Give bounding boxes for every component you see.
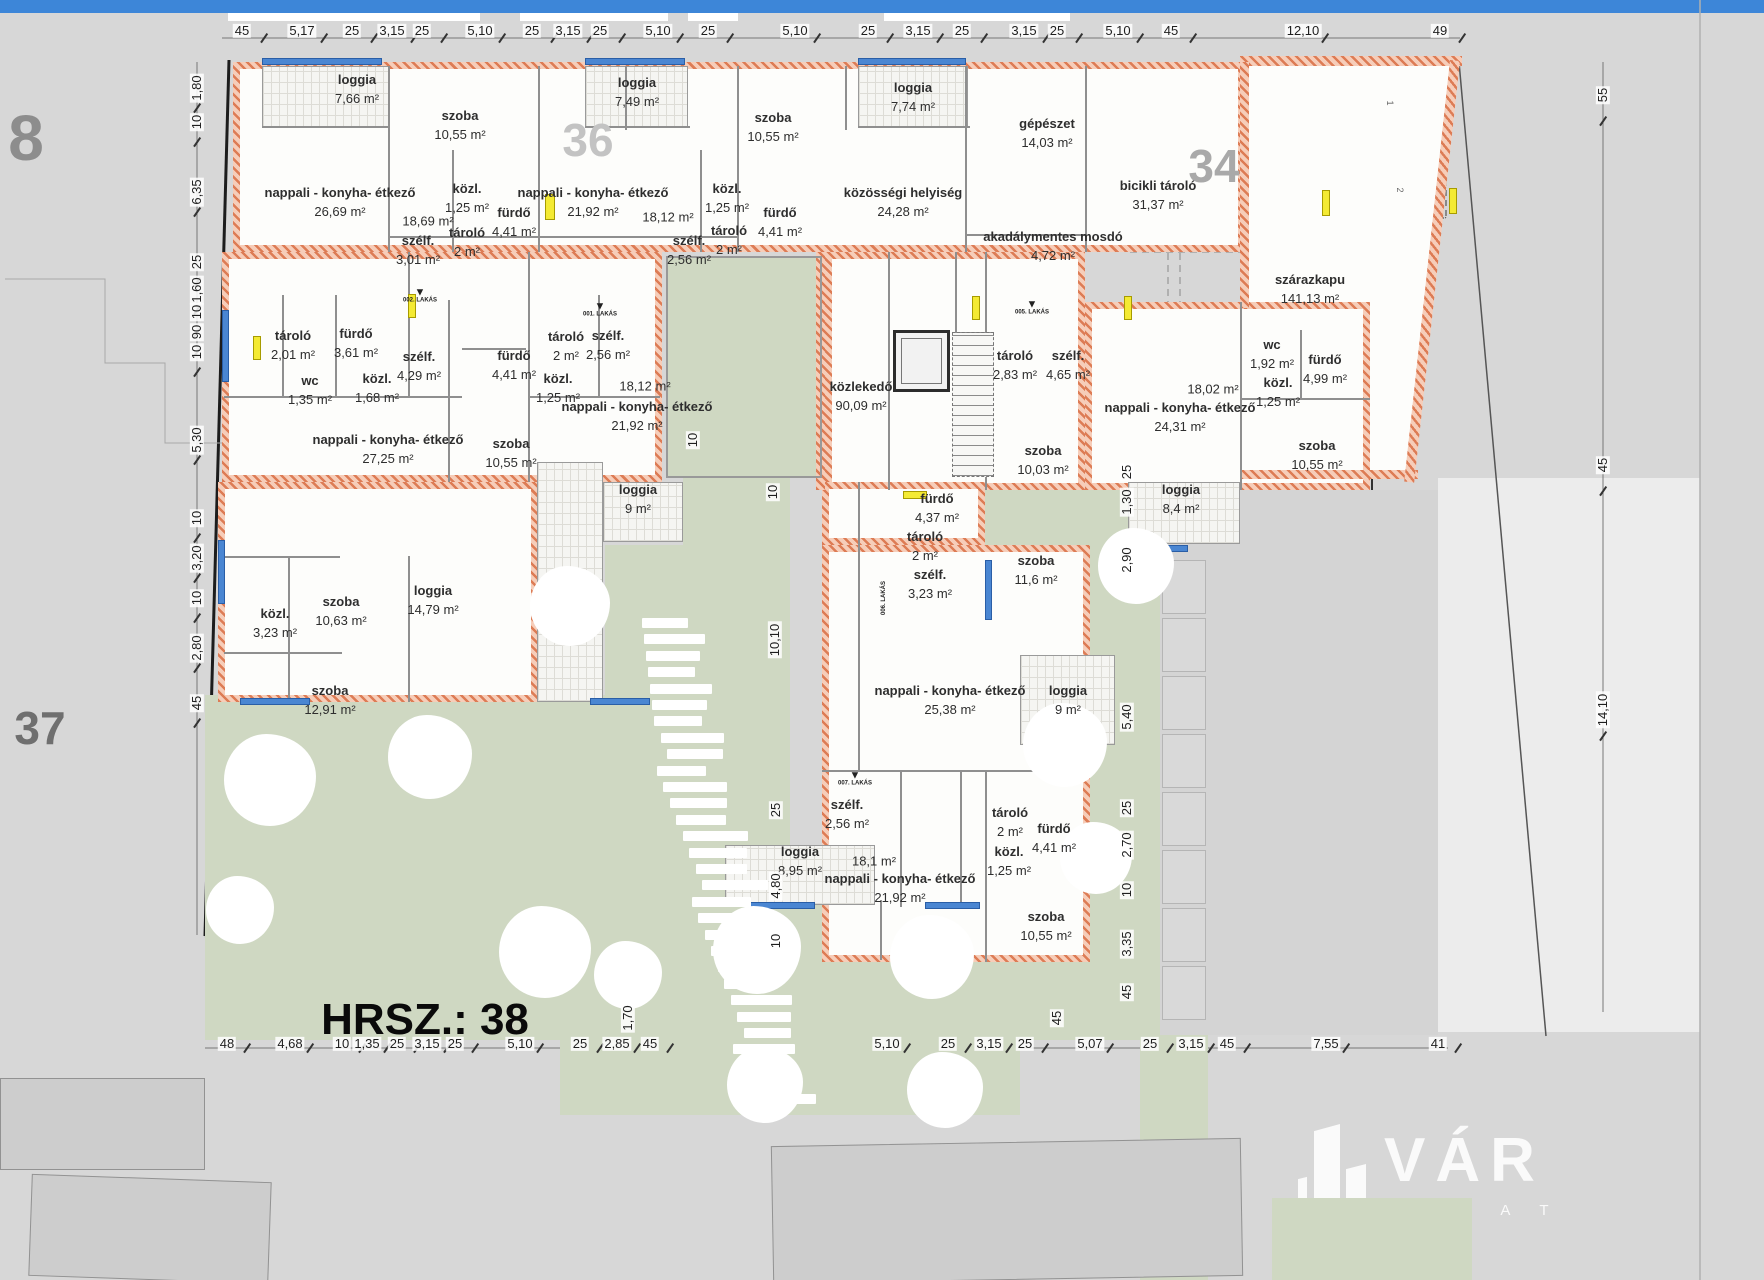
dimension-label: 25 bbox=[939, 1037, 957, 1051]
dimension-label: 45 bbox=[1050, 1009, 1064, 1027]
interior-wall bbox=[858, 126, 970, 128]
stepping-stone bbox=[737, 1012, 791, 1022]
interior-wall bbox=[222, 556, 340, 558]
hrsz-parcel-label: HRSZ.: 38 bbox=[321, 995, 529, 1045]
elevator-car bbox=[901, 338, 942, 384]
parking-stall bbox=[1162, 734, 1206, 788]
garden-area bbox=[1272, 1198, 1472, 1280]
dim-tick bbox=[193, 137, 201, 147]
stepping-stone bbox=[648, 667, 695, 677]
dimension-label: 25 bbox=[1048, 24, 1066, 38]
parcel-number-label: 8 bbox=[8, 101, 44, 175]
room-label: loggia14,79 m² bbox=[407, 582, 458, 620]
dimension-label: 25 bbox=[591, 24, 609, 38]
parcel-number-label: 36 bbox=[562, 113, 613, 167]
room-label: szélf.4,29 m² bbox=[397, 348, 441, 386]
sidewalk-segment bbox=[520, 13, 668, 21]
room-label: szélf.2,56 m² bbox=[586, 327, 630, 365]
room-label: szélf.3,01 m² bbox=[396, 232, 440, 270]
room-label: 18,12 m² bbox=[619, 378, 670, 397]
parking-stall bbox=[1162, 618, 1206, 672]
stepping-stone bbox=[646, 651, 700, 661]
dimension-label: 2,90 bbox=[1120, 545, 1134, 574]
room-label: loggia9 m² bbox=[1049, 682, 1087, 720]
dim-tick bbox=[1458, 33, 1466, 43]
dimension-label: 10 bbox=[769, 932, 783, 950]
room-label: loggia8,4 m² bbox=[1162, 481, 1200, 519]
interior-wall bbox=[1300, 330, 1302, 398]
stepping-stone bbox=[654, 716, 702, 726]
room-label: szoba11,6 m² bbox=[1014, 552, 1057, 590]
hall-axis-number: 1 bbox=[1385, 100, 1395, 105]
dimension-label: 12,10 bbox=[1285, 24, 1322, 38]
hall-wall bbox=[1240, 62, 1249, 308]
room-label: szoba10,55 m² bbox=[434, 107, 485, 145]
interior-wall bbox=[224, 396, 462, 398]
dimension-label: 25 bbox=[343, 24, 361, 38]
dim-tick bbox=[1189, 33, 1197, 43]
room-label: 18,1 m² bbox=[852, 853, 896, 872]
room-label: loggia7,49 m² bbox=[615, 74, 659, 112]
window-band bbox=[240, 698, 310, 705]
dimension-label: 3,15 bbox=[553, 24, 582, 38]
room-label: közl.3,23 m² bbox=[253, 605, 297, 643]
street-strip bbox=[0, 0, 1764, 13]
room-label: bicikli tároló31,37 m² bbox=[1120, 177, 1197, 215]
dimension-label: 5,30 bbox=[190, 425, 204, 454]
stepping-stone bbox=[657, 766, 706, 776]
room-label: szoba10,63 m² bbox=[315, 593, 366, 631]
dimension-label: 1,30 bbox=[1120, 487, 1134, 516]
stepping-stone bbox=[702, 880, 768, 890]
dimension-label: 48 bbox=[218, 1037, 236, 1051]
room-label: tároló2 m² bbox=[711, 222, 747, 260]
dimension-label: 10,10 bbox=[768, 622, 782, 659]
window-band bbox=[262, 58, 382, 65]
window-band bbox=[985, 560, 992, 620]
room-label: nappali - konyha- étkező24,31 m² bbox=[1105, 399, 1256, 437]
room-label: tároló2 m² bbox=[449, 224, 485, 262]
unit-entrance-marker: ▼001. LAKÁS bbox=[583, 303, 617, 318]
radiator-mark bbox=[1124, 296, 1132, 320]
dimension-label: 10 bbox=[190, 509, 204, 527]
dimension-label: 25 bbox=[571, 1037, 589, 1051]
room-label: közl.1,25 m² bbox=[705, 180, 749, 218]
dimension-label: 25 bbox=[413, 24, 431, 38]
window-band bbox=[858, 58, 966, 65]
stepping-stone bbox=[644, 634, 705, 644]
window-band bbox=[590, 698, 650, 705]
dim-tick bbox=[193, 573, 201, 583]
interior-wall bbox=[408, 556, 410, 702]
dim-tick bbox=[260, 33, 268, 43]
dimension-label: 3,20 bbox=[190, 543, 204, 572]
stepping-stone bbox=[670, 798, 727, 808]
dimension-label: 14,10 bbox=[1596, 692, 1610, 729]
dimension-label: 3,15 bbox=[974, 1037, 1003, 1051]
dimension-label: 45 bbox=[1596, 456, 1610, 474]
room-label: tároló2,83 m² bbox=[993, 347, 1037, 385]
dimension-label: 5,07 bbox=[1075, 1037, 1104, 1051]
room-label: közl.1,25 m² bbox=[1256, 374, 1300, 412]
dimension-label: 55 bbox=[1596, 86, 1610, 104]
dimension-label: 45 bbox=[233, 24, 251, 38]
dimension-label: 5,10 bbox=[780, 24, 809, 38]
dim-tick bbox=[440, 33, 448, 43]
dim-tick bbox=[676, 33, 684, 43]
interior-wall bbox=[262, 126, 390, 128]
dimension-label: 4,80 bbox=[769, 871, 783, 900]
parking-stall bbox=[1162, 966, 1206, 1020]
room-label: nappali - konyha- étkező25,38 m² bbox=[875, 682, 1026, 720]
building-block bbox=[218, 482, 538, 702]
dimension-label: 49 bbox=[1431, 24, 1449, 38]
room-label: szoba10,55 m² bbox=[1020, 908, 1071, 946]
dimension-label: 45 bbox=[190, 694, 204, 712]
dimension-label: 2,70 bbox=[1120, 830, 1134, 859]
dimension-label: 10 bbox=[766, 483, 780, 501]
stepping-stone bbox=[696, 864, 747, 874]
dimension-label: 25 bbox=[953, 24, 971, 38]
dim-tick bbox=[193, 207, 201, 217]
dimension-label: 45 bbox=[641, 1037, 659, 1051]
stepping-stone bbox=[689, 848, 747, 858]
window-band bbox=[222, 310, 229, 382]
dimension-label: 2,85 bbox=[602, 1037, 631, 1051]
room-label: loggia7,74 m² bbox=[891, 79, 935, 117]
room-label: akadálymentes mosdó4,72 m² bbox=[983, 228, 1122, 266]
room-label: nappali - konyha- étkező21,92 m² bbox=[825, 870, 976, 908]
dim-tick bbox=[243, 1043, 251, 1053]
dim-tick bbox=[320, 33, 328, 43]
dim-tick bbox=[193, 455, 201, 465]
dimension-label: 90 bbox=[190, 323, 204, 341]
window-band bbox=[585, 58, 685, 65]
stepping-stone bbox=[744, 1028, 791, 1038]
room-label: szélf.2,56 m² bbox=[825, 796, 869, 834]
room-label: fürdő4,41 m² bbox=[492, 347, 536, 385]
dim-tick bbox=[498, 33, 506, 43]
dimension-label: 25 bbox=[190, 253, 204, 271]
dimension-label: 10 bbox=[1120, 881, 1134, 899]
stepping-stone bbox=[667, 749, 723, 759]
room-label: 18,12 m² bbox=[642, 209, 693, 228]
dim-tick bbox=[726, 33, 734, 43]
dim-tick bbox=[306, 1043, 314, 1053]
tree bbox=[907, 1052, 983, 1128]
dimension-label: 3,35 bbox=[1120, 929, 1134, 958]
room-label: tároló2 m² bbox=[992, 804, 1028, 842]
unit-entrance-marker: ▼007. LAKÁS bbox=[838, 772, 872, 787]
room-label: közl.1,25 m² bbox=[445, 180, 489, 218]
room-label: szoba10,55 m² bbox=[1291, 437, 1342, 475]
dimension-label: 6,35 bbox=[190, 177, 204, 206]
hall-wall bbox=[1240, 56, 1462, 66]
dim-tick bbox=[193, 367, 201, 377]
dim-tick bbox=[193, 103, 201, 113]
interior-wall bbox=[858, 482, 860, 772]
room-label: fürdő4,99 m² bbox=[1303, 351, 1347, 389]
dimension-label: 25 bbox=[523, 24, 541, 38]
dimension-label: 25 bbox=[859, 24, 877, 38]
dim-tick bbox=[936, 33, 944, 43]
room-label: közl.1,25 m² bbox=[987, 843, 1031, 881]
stepping-stone bbox=[676, 815, 726, 825]
interior-wall bbox=[845, 66, 847, 130]
interior-wall bbox=[1240, 302, 1242, 490]
dimension-label: 2,80 bbox=[190, 633, 204, 662]
dim-tick bbox=[193, 613, 201, 623]
parking-stall bbox=[1162, 850, 1206, 904]
hall-axis-number: 2 bbox=[1395, 187, 1405, 192]
dimension-label: 3,15 bbox=[1009, 24, 1038, 38]
dimension-label: 5,40 bbox=[1120, 702, 1134, 731]
logo-brand-text: VÁR bbox=[1384, 1130, 1598, 1192]
neighbour-building bbox=[0, 1078, 205, 1170]
stepping-stone bbox=[692, 897, 751, 907]
dim-tick bbox=[193, 718, 201, 728]
stepping-stone bbox=[642, 618, 688, 628]
room-label: tároló2 m² bbox=[548, 328, 584, 366]
room-label: szélf.3,23 m² bbox=[908, 566, 952, 604]
interior-wall bbox=[965, 66, 967, 252]
room-label: tároló2,01 m² bbox=[271, 327, 315, 365]
dim-tick bbox=[1321, 33, 1329, 43]
dimension-label: 1,60 bbox=[190, 275, 204, 304]
parking-stall bbox=[1162, 908, 1206, 962]
room-label: tároló2 m² bbox=[907, 528, 943, 566]
dimension-label: 25 bbox=[769, 801, 783, 819]
radiator-mark bbox=[253, 336, 261, 360]
dimension-label: 4,68 bbox=[275, 1037, 304, 1051]
neighbour-building bbox=[771, 1138, 1243, 1280]
dimension-label: 3,15 bbox=[903, 24, 932, 38]
dimension-label: 10 bbox=[190, 303, 204, 321]
room-label: nappali - konyha- étkező27,25 m² bbox=[313, 431, 464, 469]
sidewalk-segment bbox=[884, 13, 1070, 21]
stepping-stone bbox=[652, 700, 707, 710]
interior-wall bbox=[955, 252, 957, 332]
dimension-label: 5,10 bbox=[643, 24, 672, 38]
room-label: közl.1,68 m² bbox=[355, 370, 399, 408]
dimension-label: 25 bbox=[1016, 1037, 1034, 1051]
dimension-label: 10 bbox=[190, 343, 204, 361]
room-label: közlekedő90,09 m² bbox=[830, 378, 893, 416]
dim-tick bbox=[193, 533, 201, 543]
dimension-label: 7,55 bbox=[1311, 1037, 1340, 1051]
dimension-label: 25 bbox=[1141, 1037, 1159, 1051]
window-band bbox=[218, 540, 225, 604]
radiator-mark bbox=[972, 296, 980, 320]
dimension-label: 45 bbox=[1218, 1037, 1236, 1051]
dim-tick bbox=[1342, 1043, 1350, 1053]
dimension-label: 3,15 bbox=[377, 24, 406, 38]
room-label: fürdő3,61 m² bbox=[334, 325, 378, 363]
dim-tick bbox=[1207, 1043, 1215, 1053]
dim-tick bbox=[618, 33, 626, 43]
dimension-label: 1,70 bbox=[621, 1003, 635, 1032]
parking-stall bbox=[1162, 676, 1206, 730]
room-label: szárazkapu141,13 m² bbox=[1275, 271, 1345, 309]
unit-entrance-marker: 006. LAKÁS bbox=[881, 581, 887, 615]
room-label: wc1,35 m² bbox=[288, 372, 332, 410]
site-plan-canvas: VÁR I N G A T L A loggia7,66 m bbox=[0, 0, 1764, 1280]
interior-wall bbox=[880, 900, 882, 960]
dim-tick bbox=[193, 663, 201, 673]
stepping-stone bbox=[683, 831, 748, 841]
stepping-stone bbox=[663, 782, 727, 792]
dim-tick bbox=[1454, 1043, 1462, 1053]
dimension-label: 45 bbox=[1162, 24, 1180, 38]
dim-tick bbox=[536, 1043, 544, 1053]
room-label: gépészet14,03 m² bbox=[1019, 115, 1075, 153]
neighbour-building bbox=[28, 1174, 271, 1280]
room-label: szoba10,03 m² bbox=[1017, 442, 1068, 480]
unit-entrance-marker: ▼005. LAKÁS bbox=[1015, 301, 1049, 316]
room-label: wc1,92 m² bbox=[1250, 336, 1294, 374]
interior-wall bbox=[1085, 66, 1087, 252]
radiator-mark bbox=[1449, 188, 1457, 214]
room-label: szoba10,55 m² bbox=[485, 435, 536, 473]
interior-wall bbox=[388, 66, 390, 252]
dimension-label: 1,80 bbox=[190, 73, 204, 102]
dim-tick bbox=[1075, 33, 1083, 43]
dim-tick bbox=[980, 33, 988, 43]
parcel-number-label: 34 bbox=[1188, 139, 1239, 193]
room-label: nappali - konyha- étkező26,69 m² bbox=[265, 184, 416, 222]
room-label: fürdő4,41 m² bbox=[758, 204, 802, 242]
room-label: szoba10,55 m² bbox=[747, 109, 798, 147]
dimension-label: 10 bbox=[686, 431, 700, 449]
room-label: közösségi helyiség24,28 m² bbox=[844, 184, 963, 222]
room-label: szélf.2,56 m² bbox=[667, 232, 711, 270]
dim-tick bbox=[1599, 116, 1607, 126]
dimension-label: 5,10 bbox=[1103, 24, 1132, 38]
radiator-mark bbox=[1322, 190, 1330, 216]
dim-tick bbox=[1136, 33, 1144, 43]
dim-tick bbox=[886, 33, 894, 43]
dimension-label: 25 bbox=[1120, 463, 1134, 481]
dim-tick bbox=[813, 33, 821, 43]
interior-wall bbox=[224, 652, 342, 654]
staircase bbox=[952, 332, 994, 477]
parking-stall bbox=[1162, 792, 1206, 846]
room-label: loggia9 m² bbox=[619, 481, 657, 519]
dimension-label: 10 bbox=[190, 589, 204, 607]
interior-wall bbox=[888, 252, 890, 490]
dim-tick bbox=[1243, 1043, 1251, 1053]
room-label: 18,02 m² bbox=[1187, 381, 1238, 400]
interior-wall bbox=[538, 66, 540, 252]
dimension-label: 10 bbox=[190, 113, 204, 131]
parcel-number-label: 37 bbox=[14, 701, 65, 755]
dimension-label: 5,17 bbox=[287, 24, 316, 38]
room-label: szélf.4,65 m² bbox=[1046, 347, 1090, 385]
stepping-stone bbox=[650, 684, 712, 694]
room-label: loggia8,95 m² bbox=[778, 843, 822, 881]
stepping-stone bbox=[731, 995, 792, 1005]
sidewalk-segment bbox=[688, 13, 738, 21]
dimension-label: 3,15 bbox=[1176, 1037, 1205, 1051]
stepping-stone bbox=[661, 733, 724, 743]
room-label: fürdő4,37 m² bbox=[915, 490, 959, 528]
dimension-label: 25 bbox=[699, 24, 717, 38]
dim-tick bbox=[1106, 1043, 1114, 1053]
neighbour-parcel-right bbox=[1438, 478, 1700, 1032]
room-label: fürdő4,41 m² bbox=[1032, 820, 1076, 858]
unit-entrance-marker: ▼002. LAKÁS bbox=[403, 289, 437, 304]
dimension-label: 45 bbox=[1120, 983, 1134, 1001]
room-label: szoba12,91 m² bbox=[304, 682, 355, 720]
dimension-label: 25 bbox=[1120, 799, 1134, 817]
sidewalk-segment bbox=[228, 13, 480, 21]
dimension-label: 41 bbox=[1429, 1037, 1447, 1051]
room-label: loggia7,66 m² bbox=[335, 71, 379, 109]
dimension-label: 5,10 bbox=[872, 1037, 901, 1051]
dimension-label: 5,10 bbox=[465, 24, 494, 38]
dim-tick bbox=[1041, 1043, 1049, 1053]
